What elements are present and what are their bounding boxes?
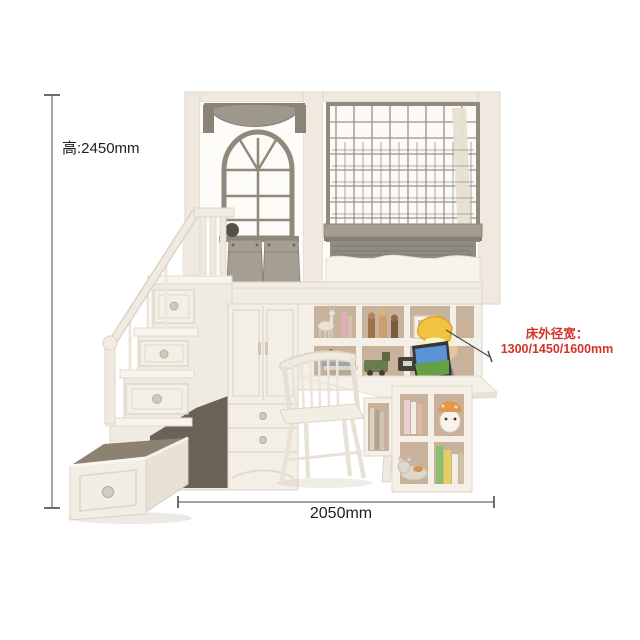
valance-bracket-right: [295, 105, 306, 133]
loft-bed-illustration: [0, 0, 640, 640]
guardrail-shadow: [324, 237, 482, 241]
pullout-storage-box: [68, 438, 192, 524]
pink-book-1: [342, 312, 347, 338]
height-dimension-label: 高:2450mm: [62, 137, 140, 158]
cabinet-books-top: [404, 400, 422, 434]
box-knob: [103, 487, 114, 498]
magazine-shelf: [364, 398, 393, 456]
white-duvet: [326, 255, 480, 282]
wardrobe-handle-right: [265, 342, 268, 355]
bookshelf-cabinet: [392, 386, 472, 492]
wardrobe-knob-2: [260, 437, 267, 444]
stair-drawer-2: [140, 341, 188, 366]
wardrobe-knob-1: [260, 413, 267, 420]
width-dimension-label: 2050mm: [295, 505, 387, 523]
bed-guardrail: [324, 224, 482, 237]
toy-on-sill: [225, 223, 239, 237]
stair-drawer-3: [126, 384, 188, 414]
upper-bunk: [324, 104, 482, 282]
bed-width-annotation: 床外径宽： 1300/1450/1600mm: [494, 327, 620, 357]
bed-width-annotation-values: 1300/1450/1600mm: [494, 342, 620, 357]
newel-ball: [103, 336, 117, 350]
valance-bracket-left: [203, 105, 214, 133]
height-dimension-line: [44, 95, 60, 508]
bed-width-annotation-title: 床外径宽：: [494, 327, 620, 342]
cubby-4: [456, 306, 474, 338]
wardrobe-handle-left: [258, 342, 261, 355]
newel-post: [105, 348, 115, 424]
stair-drawer-1: [154, 290, 194, 323]
loft-floor-fascia: [198, 282, 482, 304]
product-dimension-image: 高:2450mm 2050mm 床外径宽： 1300/1450/1600mm: [0, 0, 640, 640]
bedding: [326, 241, 480, 282]
chair-shadow: [277, 478, 373, 488]
pink-book-2: [348, 316, 352, 338]
mushroom-plush: [438, 401, 462, 432]
